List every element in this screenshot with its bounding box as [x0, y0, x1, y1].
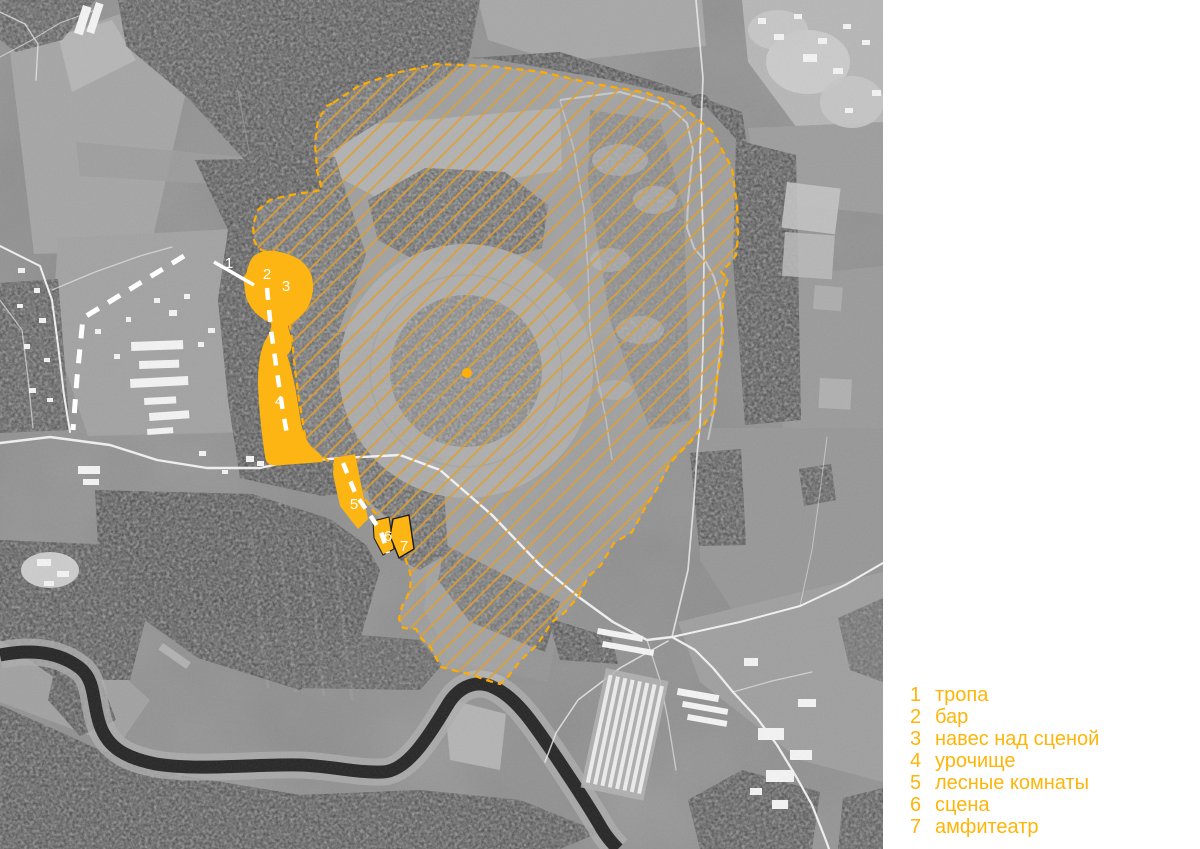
marker-3: 3 [282, 278, 290, 295]
center-dot [462, 368, 472, 378]
marker-7: 7 [400, 538, 408, 555]
legend-label: лесные комнаты [935, 772, 1089, 794]
marker-1: 1 [225, 255, 233, 272]
legend-num: 1 [910, 684, 935, 706]
legend-num: 4 [910, 750, 935, 772]
legend: 1 тропа 2 бар 3 навес над сценой 4 урочи… [910, 684, 1099, 838]
marker-2: 2 [263, 266, 271, 283]
marker-4: 4 [275, 393, 283, 410]
legend-panel: 1 тропа 2 бар 3 навес над сценой 4 урочи… [883, 0, 1200, 849]
legend-item-tract: 4 урочище [910, 750, 1099, 772]
legend-label: сцена [935, 794, 990, 816]
legend-item-forest-rooms: 5 лесные комнаты [910, 772, 1099, 794]
site-plan-svg: 1 2 3 4 5 6 7 [0, 0, 883, 849]
legend-label: амфитеатр [935, 816, 1039, 838]
legend-num: 5 [910, 772, 935, 794]
legend-label: навес над сценой [935, 728, 1099, 750]
legend-item-bar: 2 бар [910, 706, 1099, 728]
page: 1 2 3 4 5 6 7 1 тропа 2 бар 3 навес н [0, 0, 1200, 849]
legend-item-stage: 6 сцена [910, 794, 1099, 816]
legend-num: 3 [910, 728, 935, 750]
legend-label: тропа [935, 684, 988, 706]
marker-5: 5 [350, 496, 358, 513]
legend-item-stage-canopy: 3 навес над сценой [910, 728, 1099, 750]
legend-num: 6 [910, 794, 935, 816]
legend-item-trail: 1 тропа [910, 684, 1099, 706]
aerial-map: 1 2 3 4 5 6 7 [0, 0, 883, 849]
legend-label: бар [935, 706, 968, 728]
legend-num: 7 [910, 816, 935, 838]
legend-label: урочище [935, 750, 1016, 772]
legend-num: 2 [910, 706, 935, 728]
marker-6: 6 [384, 528, 392, 545]
legend-item-amphitheatre: 7 амфитеатр [910, 816, 1099, 838]
